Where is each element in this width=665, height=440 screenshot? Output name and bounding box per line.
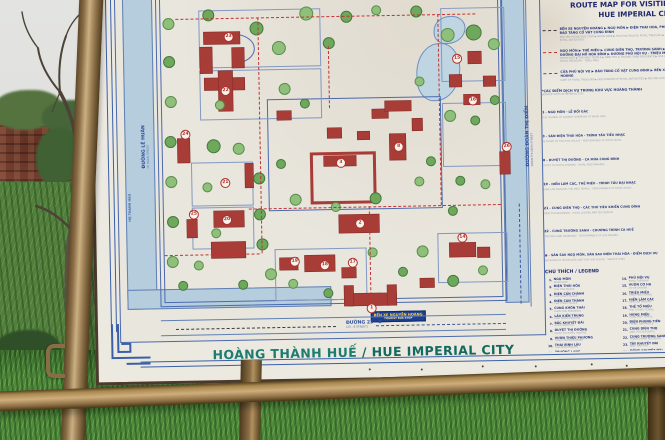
map-panel: BẾN XE NGUYỄN HOÀNG TOURIST BUS STOP 123… — [113, 0, 546, 343]
legend-entry: 15.VƯỜN CƠ HẠCO HA GARDEN — [620, 283, 665, 290]
legend-entry-number: 17. — [621, 299, 630, 305]
legend-entry-number: 3. — [545, 293, 554, 299]
service-site-key: 22 - — [544, 230, 552, 234]
frame-bracket — [46, 344, 65, 378]
street-label: HỘ THÀNH HÀO — [129, 194, 133, 222]
legend-heading: CHÚ THÍCH / LEGEND — [545, 268, 665, 276]
photo-canvas: BẾN XE NGUYỄN HOÀNG TOURIST BUS STOP 123… — [0, 0, 665, 440]
street-label: ĐƯỜNG ĐOÀN THỊ ĐIỂMDOAN THI DIEM STREET — [525, 105, 534, 166]
service-site-en: HIEN LAM PAVILION, THE MIEU TEMPLE - PER… — [550, 186, 665, 191]
service-site-item: 22 - CUNG TRƯỜNG SANH - CHƯƠNG TRÌNH CA … — [544, 215, 665, 240]
speck — [591, 363, 593, 365]
map-building — [420, 278, 434, 287]
speck — [421, 368, 423, 370]
service-site-vi: HIỂN LÂM CÁC, THẾ MIẾU - TRÌNH TẤU ĐẠI N… — [551, 180, 636, 186]
service-site-en: IN FRONT OF THAI HOA PALACE - PERFORMANC… — [550, 138, 665, 143]
legend-entry-number: 4. — [546, 300, 555, 306]
map-site-marker: 22 — [221, 86, 231, 96]
service-site-item: 1 - NGỌ MÔN - LỄ ĐỔI GÁCTHE CHANGE OF GU… — [542, 95, 665, 120]
route-text-en: NOON GATE ▶ THE MIEU TEMPLE ▶ DIEN THO &… — [560, 54, 665, 62]
map-tree — [371, 5, 381, 15]
map-building — [178, 139, 190, 163]
legend-entry-number: 20. — [621, 321, 630, 327]
service-site-vi: DUYỆT THỊ ĐƯỜNG - CA MÚA CUNG ĐÌNH — [549, 156, 620, 161]
map-site-marker: 19 — [290, 257, 300, 267]
legend-entry-number: 19. — [621, 313, 630, 319]
map-building — [327, 128, 341, 138]
route-dash-swatch — [543, 30, 557, 31]
map-tree — [414, 76, 424, 86]
legend-entry-number: 7. — [546, 322, 555, 328]
route-dash-swatch — [543, 73, 557, 74]
legend-entry-number: 21. — [621, 328, 630, 334]
service-site-vi: CUNG DIÊN THỌ - CÁC THÚ TIÊU KHIỂN CUNG … — [552, 204, 640, 210]
service-site-en: DIEN THO RESIDENCE - ROYAL LEISURE AND T… — [551, 210, 665, 215]
signboard: BẾN XE NGUYỄN HOÀNG TOURIST BUS STOP 123… — [88, 0, 665, 385]
speck — [369, 368, 371, 370]
legend-entry-number: 22. — [621, 335, 630, 341]
map-building — [483, 76, 495, 86]
legend-column-right: 14.PHỦ NỘI VỤROYAL TREASURY15.VƯỜN CƠ HẠ… — [620, 276, 665, 353]
service-site-vi: CUNG TRƯỜNG SANH - CHƯƠNG TRÌNH CA HUẾ — [552, 228, 633, 233]
legend-entry-number: 14. — [620, 277, 629, 283]
map-building — [449, 75, 461, 87]
route-dash-swatch — [543, 51, 557, 52]
service-site-item: 8 - DUYỆT THỊ ĐƯỜNG - CA MÚA CUNG ĐÌNHDU… — [543, 143, 665, 168]
legend-entry: 5.CUNG KHÔN THÁIKHON THAI RESIDENCE — [546, 306, 621, 313]
map-building — [187, 220, 197, 238]
map-courtyard — [437, 232, 508, 283]
legend-entry-number: 18. — [621, 306, 630, 312]
legend-title-line2: HUE IMPERIAL CITY — [598, 8, 665, 19]
service-site-item: 21 - CUNG DIÊN THỌ - CÁC THÚ TIÊU KHIỂN … — [544, 191, 665, 216]
route-description: NGỌ MÔN ▶ THẾ MIẾU ▶ CUNG DIÊN THỌ, TRƯỜ… — [543, 46, 665, 63]
service-site-vi: SÂN SAU NGỌ MÔN, SÂN SAU ĐIỆN THÁI HÒA -… — [551, 252, 658, 258]
legend-entry-number: 16. — [620, 291, 629, 297]
legend-entry-number: 15. — [620, 284, 629, 290]
legend-entry-number: 2. — [545, 286, 554, 292]
map-site-marker: 24 — [180, 130, 190, 140]
service-site-en: DUYET THI ROYAL THEATRE - ROYAL PERFORMA… — [550, 162, 665, 167]
map-building — [449, 242, 475, 256]
map-building — [200, 47, 212, 73]
service-site-item: ● - SÂN SAU NGỌ MÔN, SÂN SAU ĐIỆN THÁI H… — [544, 239, 665, 264]
map-building — [344, 286, 353, 306]
service-site-en: THE CHANGE OF GUARDS CEREMONY AT NOON GA… — [549, 114, 665, 119]
map-building — [204, 32, 240, 45]
legend-entry-number: 5. — [546, 307, 555, 313]
map-building — [342, 268, 356, 278]
legend-panel: HMCC ROUTE MAP FOR VISITING HUE IMPERIAL… — [540, 0, 665, 352]
title-separator: / — [357, 344, 372, 359]
map-site-marker: 21 — [220, 178, 230, 188]
map-building — [500, 152, 510, 174]
map-canvas: BẾN XE NGUYỄN HOÀNG TOURIST BUS STOP 123… — [114, 0, 545, 342]
map-moat — [122, 0, 158, 310]
service-site-vi: NGỌ MÔN - LỄ ĐỔI GÁC — [548, 109, 588, 114]
route-descriptions: BẾN XE NGUYỄN HOÀNG ▶ NGỌ MÔN ▶ ĐIỆN THÁ… — [541, 24, 665, 81]
route-description: BẾN XE NGUYỄN HOÀNG ▶ NGỌ MÔN ▶ ĐIỆN THÁ… — [543, 24, 665, 41]
legend-columns: 1.NGỌ MÔNNOON GATE2.ĐIỆN THÁI HÒATHAI HO… — [545, 276, 665, 353]
legend-entry: 18.THẾ TỔ MIẾUTHE TO MIEU TEMPLE — [621, 305, 665, 312]
map-building — [478, 247, 490, 257]
legend-entry-number: 23. — [621, 342, 630, 348]
speck — [626, 365, 628, 367]
map-building — [245, 164, 253, 188]
service-sites-list: 1 - NGỌ MÔN - LỄ ĐỔI GÁCTHE CHANGE OF GU… — [542, 95, 665, 263]
service-site-en: BACKYARD OF NOON GATE AND THAI HOA PALAC… — [552, 258, 665, 263]
street-label: ĐƯỜNG 23 - 8(23 - 8 STREET) — [346, 320, 382, 329]
legend-entry: 8.DUYỆT THỊ ĐƯỜNGDUYET THI ROYAL THEATRE — [546, 328, 621, 335]
service-site-item: 19 - HIỂN LÂM CÁC, THẾ MIẾU - TRÌNH TẤU … — [543, 167, 665, 192]
map-building — [468, 51, 481, 63]
street-label: ĐƯỜNG LÊ HUÂNLE HUAN STREET — [141, 125, 150, 169]
map-building — [412, 118, 422, 130]
map-building — [387, 285, 396, 305]
service-site-item: 3 - SÂN ĐIỆN THÁI HÒA - TRÌNH TẤU TIỂU N… — [542, 119, 665, 144]
title-english: HUE IMPERIAL CITY — [371, 342, 514, 360]
map-building — [385, 101, 411, 111]
legend-entry-number: 1. — [545, 278, 554, 284]
legend-entry-number: 8. — [546, 329, 555, 335]
legend-entry: 21.CUNG DIÊN THỌDIEN THO RESIDENCE — [621, 327, 665, 334]
map-site-marker: 2 — [355, 218, 365, 228]
map-building — [357, 131, 369, 139]
legend-entry: 2.ĐIỆN THÁI HÒATHAI HOA PALACE — [545, 284, 620, 291]
service-site-vi: SÂN ĐIỆN THÁI HÒA - TRÌNH TẤU TIỂU NHẠC — [548, 132, 625, 137]
legend-entry-vi: TRƯỜNG LANG — [555, 351, 581, 352]
street-label-text: HỘ THÀNH HÀO — [128, 194, 133, 222]
legend-entry: 16.TRIỆU MIẾUTRIEU MIEU TEMPLE — [620, 290, 665, 297]
street-label-subtext: (23 - 8 STREET) — [346, 325, 382, 329]
route-description: CỬA PHỦ NỘI VỤ ▶ BẢO TÀNG CỔ VẬT CUNG ĐÌ… — [543, 67, 665, 81]
service-site-key: 19 - — [543, 182, 551, 186]
legend-entry: 22.CUNG TRƯỜNG SANHTRUONG SANH RESIDENCE — [621, 334, 665, 341]
service-site-key: 21 - — [544, 206, 552, 210]
map-building — [211, 242, 245, 259]
map-building — [232, 48, 244, 68]
speck — [482, 365, 484, 367]
map-tree — [478, 265, 488, 275]
map-building — [277, 111, 291, 120]
speck — [535, 365, 537, 367]
service-site-en: TRUONG SANH RESIDENCE - PERFORMANCE OF H… — [551, 234, 665, 239]
title-vietnamese: HOÀNG THÀNH HUẾ — [212, 345, 357, 363]
legend-entry-number: 6. — [546, 315, 555, 321]
